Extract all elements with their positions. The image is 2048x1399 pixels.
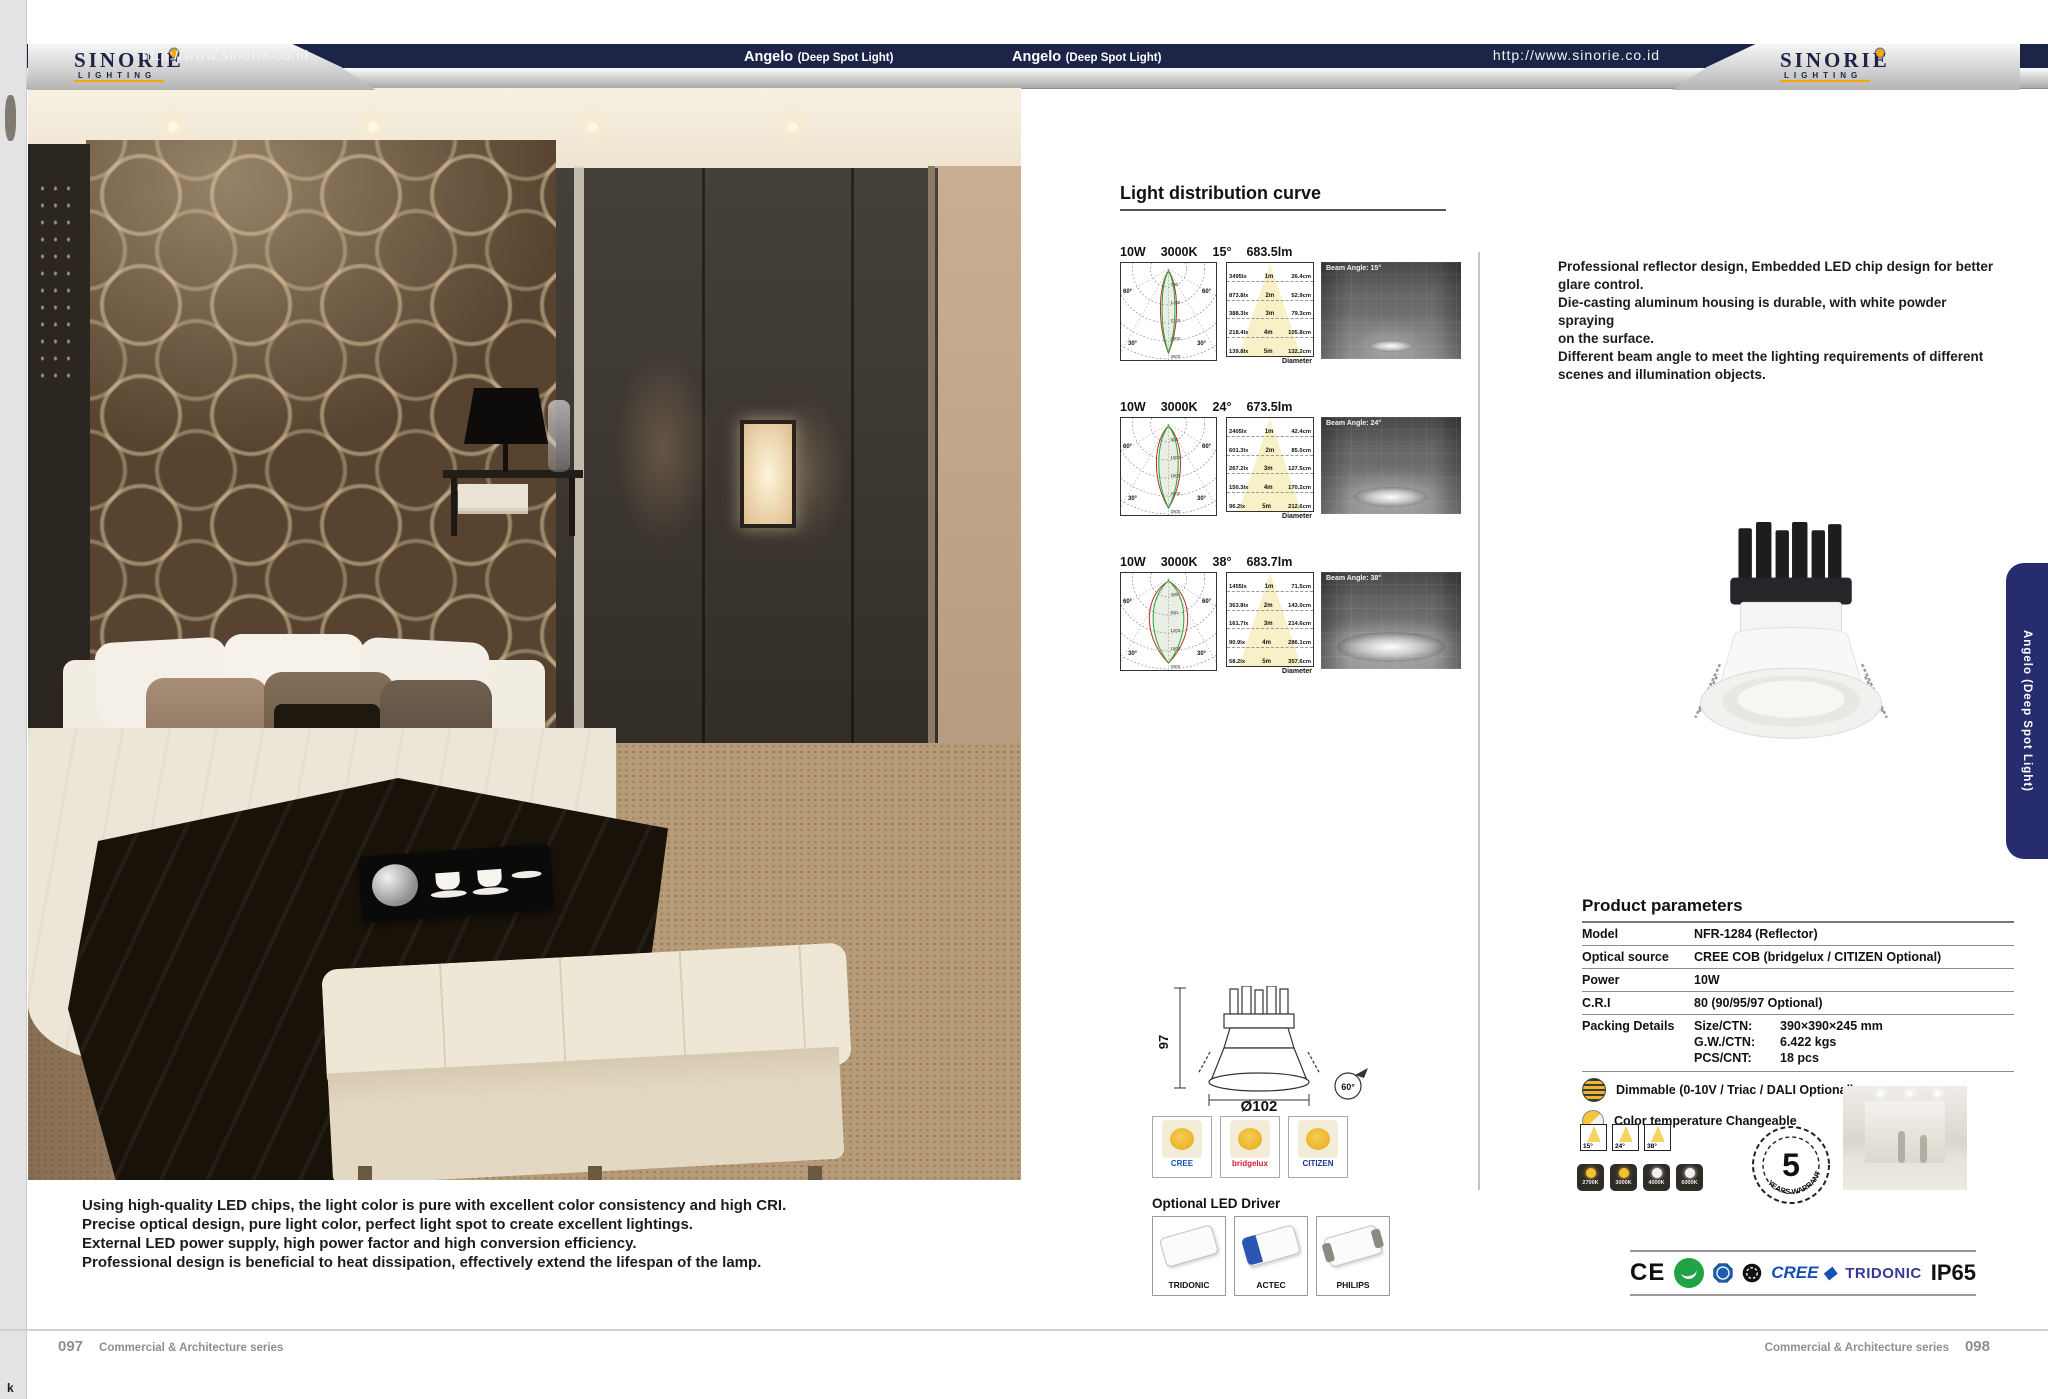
brand-tagline: LIGHTING: [1780, 71, 1870, 82]
cone-table-row: 267.2lx3m127.5cm: [1227, 456, 1313, 475]
driver-brand: TRIDONIC: [1153, 1280, 1225, 1290]
warranty-stamp: 5 YEARS WARRANTY: [1750, 1124, 1832, 1206]
mannequin-figure: [1898, 1131, 1905, 1163]
svg-text:30°: 30°: [1197, 651, 1207, 657]
cree-logo: CREE ◆: [1771, 1263, 1836, 1283]
chip-brand: CREE: [1153, 1159, 1211, 1168]
render-spotlight: [1878, 1091, 1883, 1096]
chip-brand: CITIZEN: [1289, 1159, 1347, 1168]
cone-table-row: 90.9lx4m286.1cm: [1227, 629, 1313, 648]
brand-name: SINORIE: [1780, 48, 1890, 72]
driver-option: ACTEC: [1234, 1216, 1308, 1296]
beam-cone-icon: [1619, 1126, 1633, 1142]
beam-room-photo: Beam Angle: 38°: [1321, 572, 1461, 669]
spec-cct: 3000K: [1161, 245, 1198, 259]
driver-image: [1159, 1224, 1219, 1268]
lit-wall-niche: [740, 420, 796, 528]
svg-text:60°: 60°: [1123, 444, 1133, 450]
ip-rating: IP65: [1931, 1260, 1976, 1286]
ceiling-spotlight: [788, 122, 798, 132]
parameter-row: C.R.I 80 (90/95/97 Optional): [1582, 992, 2014, 1015]
cone-table-row: 58.2lx5m357.6cm: [1227, 648, 1313, 666]
distribution-spec: 10W3000K38°683.7lm: [1120, 555, 1456, 569]
catalog-spread: SINORIE LIGHTING SINORIE LIGHTING http:/…: [0, 0, 2048, 1399]
distribution-spec: 10W3000K24°673.5lm: [1120, 400, 1456, 414]
dimension-drawing: 97 Ø102 60°: [1150, 986, 1440, 1112]
wall-frame: [574, 166, 584, 732]
glass-lamp: [548, 400, 570, 472]
saucer: [472, 886, 508, 895]
driver-image: [1323, 1224, 1383, 1268]
svg-text:2500: 2500: [1171, 509, 1181, 514]
column-divider: [1478, 252, 1480, 1190]
spec-angle: 38°: [1213, 555, 1232, 569]
side-tab-label: Angelo (Deep Spot Light): [2021, 630, 2033, 792]
render-spotlight: [1907, 1091, 1912, 1096]
svg-text:2000: 2000: [1171, 664, 1181, 669]
saucer: [431, 889, 467, 898]
beam-cone-icon: [1587, 1126, 1601, 1142]
tuv-cert-icon: [1713, 1258, 1733, 1288]
light-spot: [1368, 340, 1414, 352]
papers-stack: [458, 484, 528, 508]
cone-table-row: 96.2lx5m212.6cm: [1227, 493, 1313, 511]
cone-diagram: 1455lx1m71.5cm363.8lx2m143.0cm161.7lx3m2…: [1226, 572, 1312, 671]
footer-right: Commercial & Architecture series 098: [1560, 1338, 1990, 1355]
tilt-icon: 60°: [1335, 1068, 1368, 1099]
svg-text:60°: 60°: [1202, 289, 1212, 295]
dimmable-icon: [1582, 1078, 1606, 1102]
website-url-left: http://www.sinorie.co.id: [142, 47, 309, 63]
application-render-photo: [1843, 1086, 1967, 1190]
ce-mark: CE: [1630, 1259, 1665, 1287]
cob-chip-image: [1298, 1120, 1338, 1158]
svg-text:60°: 60°: [1202, 444, 1212, 450]
cct-option: 6000K: [1676, 1164, 1703, 1191]
brand-logo: SINORIE LIGHTING: [1780, 48, 2010, 82]
beam-angle-options: 15° 24° 38°: [1580, 1124, 1671, 1151]
parameter-row: Power 10W: [1582, 969, 2014, 992]
diameter-dimension: Ø102: [1241, 1098, 1278, 1112]
driver-options: TRIDONIC ACTEC PHILIPS: [1152, 1216, 1390, 1296]
parameter-row-packing: Packing Details Size/CTN: 390×390×245 mm…: [1582, 1015, 2014, 1072]
beam-angle-caption: Beam Angle: 24°: [1326, 420, 1381, 427]
tea-cup: [477, 869, 502, 888]
svg-text:60°: 60°: [1341, 1082, 1355, 1092]
website-url-right: http://www.sinorie.co.id: [1260, 47, 1660, 63]
footer-left: 097 Commercial & Architecture series: [58, 1338, 283, 1355]
bedroom-photo: [28, 88, 1021, 1180]
product-intro: Professional reflector design, Embedded …: [1558, 258, 1998, 384]
bulb-icon: [1685, 1168, 1695, 1178]
warranty-number: 5: [1782, 1147, 1800, 1183]
height-dimension: 97: [1156, 1035, 1171, 1049]
certifications-row: CE CREE ◆ TRIDONIC IP65: [1630, 1250, 1976, 1296]
table-lamp-stem: [503, 444, 508, 472]
tea-cup: [435, 872, 460, 891]
cone-diagram: 3495lx1m26.4cm873.8lx2m52.9cm388.3lx3m79…: [1226, 262, 1312, 361]
cone-table-row: 363.8lx2m143.0cm: [1227, 592, 1313, 611]
cone-table-row: 150.3lx4m170.2cm: [1227, 474, 1313, 493]
cone-table-row: 161.7lx3m214.6cm: [1227, 611, 1313, 630]
packing-line: Size/CTN: 390×390×245 mm: [1694, 1019, 2014, 1033]
bulb-icon: [1619, 1168, 1629, 1178]
ceiling-spotlight: [168, 122, 178, 132]
parameters-title: Product parameters: [1582, 896, 2014, 923]
series-label: Commercial & Architecture series: [1765, 1342, 1949, 1354]
spec-flux: 683.7lm: [1246, 555, 1292, 569]
spec-flux: 673.5lm: [1246, 400, 1292, 414]
beam-angle-option: 24°: [1612, 1124, 1639, 1151]
ceiling-spotlight: [588, 122, 598, 132]
driver-image: [1241, 1224, 1301, 1268]
footer-rule: [0, 1329, 2048, 1331]
spec-angle: 15°: [1213, 245, 1232, 259]
driver-brand: ACTEC: [1235, 1280, 1307, 1290]
driver-section-title: Optional LED Driver: [1152, 1196, 1280, 1211]
cct-option: 4000K: [1643, 1164, 1670, 1191]
tan-wall: [933, 166, 1021, 756]
table-lamp: [464, 388, 548, 444]
cob-chip-image: [1230, 1120, 1270, 1158]
intro-line: on the surface.: [1558, 330, 1998, 348]
cone-table-row: 2405lx1m42.4cm: [1227, 418, 1313, 437]
intro-line: Die-casting aluminum housing is durable,…: [1558, 294, 1998, 330]
diameter-label: Diameter: [1282, 668, 1312, 675]
svg-text:60°: 60°: [1123, 289, 1133, 295]
bulb-icon: [1652, 1168, 1662, 1178]
corner-mark: k: [7, 1381, 14, 1395]
page-number: 097: [58, 1338, 83, 1355]
spec-power: 10W: [1120, 555, 1146, 569]
beam-room-photo: Beam Angle: 24°: [1321, 417, 1461, 514]
polar-curve-chart: 700140021002800350060°60°30°30°: [1120, 262, 1217, 361]
parameter-row: Model NFR-1284 (Reflector): [1582, 923, 2014, 946]
silver-kettle: [371, 863, 420, 908]
beam-angle-caption: Beam Angle: 38°: [1326, 575, 1381, 582]
product-title-right: Angelo (Deep Spot Light): [1012, 48, 1161, 66]
spec-angle: 24°: [1213, 400, 1232, 414]
cone-table-row: 3495lx1m26.4cm: [1227, 263, 1313, 282]
downlight-product-photo: [1672, 520, 1910, 762]
cone-table-row: 1455lx1m71.5cm: [1227, 573, 1313, 592]
light-spot: [1337, 632, 1445, 662]
cct-option: 3000K: [1610, 1164, 1637, 1191]
polar-curve-chart: 500100015002000250060°60°30°30°: [1120, 417, 1217, 516]
svg-text:30°: 30°: [1197, 341, 1207, 347]
intro-line: scenes and illumination objects.: [1558, 366, 1998, 384]
page-number: 098: [1965, 1338, 1990, 1355]
emblem-cert-icon: [1742, 1258, 1762, 1288]
chip-brand: bridgelux: [1221, 1159, 1279, 1168]
cone-table-row: 873.8lx2m52.9cm: [1227, 282, 1313, 301]
wall-frame: [928, 166, 935, 754]
svg-text:60°: 60°: [1202, 599, 1212, 605]
svg-text:30°: 30°: [1128, 651, 1138, 657]
diameter-label: Diameter: [1282, 513, 1312, 520]
distribution-row: 10W3000K15°683.5lm700140021002800350060°…: [1120, 245, 1456, 361]
beam-angle-option: 15°: [1580, 1124, 1607, 1151]
chip-option: bridgelux: [1220, 1116, 1280, 1178]
polar-curve-chart: 40080012001600200060°60°30°30°: [1120, 572, 1217, 671]
spec-power: 10W: [1120, 400, 1146, 414]
chip-option: CITIZEN: [1288, 1116, 1348, 1178]
cob-chip-image: [1162, 1120, 1202, 1158]
description-line: Using high-quality LED chips, the light …: [82, 1196, 1002, 1215]
intro-line: Different beam angle to meet the lightin…: [1558, 348, 1998, 366]
driver-option: TRIDONIC: [1152, 1216, 1226, 1296]
cone-table-row: 388.3lx3m79.3cm: [1227, 301, 1313, 320]
adjacent-page-artifact: [5, 95, 16, 141]
driver-option: PHILIPS: [1316, 1216, 1390, 1296]
mannequin-figure: [1920, 1135, 1927, 1163]
series-side-tab: Angelo (Deep Spot Light): [2006, 563, 2048, 859]
spec-cct: 3000K: [1161, 555, 1198, 569]
led-chip-options: CREE bridgelux CITIZEN: [1152, 1116, 1348, 1178]
light-distribution-title: Light distribution curve: [1120, 183, 1321, 204]
svg-text:60°: 60°: [1123, 599, 1133, 605]
page-edge-strip: k: [0, 0, 27, 1399]
cone-table-row: 139.8lx5m132.2cm: [1227, 338, 1313, 356]
intro-line: glare control.: [1558, 276, 1998, 294]
description-line: Professional design is beneficial to hea…: [82, 1253, 1002, 1272]
parameter-row: Optical source CREE COB (bridgelux / CIT…: [1582, 946, 2014, 969]
saucer: [511, 870, 541, 879]
rohs-cert-icon: [1674, 1258, 1704, 1288]
svg-text:30°: 30°: [1128, 496, 1138, 502]
tridonic-logo: TRIDONIC: [1845, 1265, 1922, 1282]
distribution-row: 10W3000K24°673.5lm500100015002000250060°…: [1120, 400, 1456, 516]
render-spotlight: [1935, 1091, 1940, 1096]
brand-tagline: LIGHTING: [74, 71, 164, 82]
packing-line: G.W./CTN: 6.422 kgs: [1694, 1035, 2014, 1049]
beam-angle-caption: Beam Angle: 15°: [1326, 265, 1381, 272]
svg-text:30°: 30°: [1128, 341, 1138, 347]
bench-leg: [808, 1166, 822, 1180]
series-label: Commercial & Architecture series: [99, 1342, 283, 1354]
breakfast-tray: [358, 843, 554, 922]
description-line: Precise optical design, pure light color…: [82, 1215, 1002, 1234]
svg-text:3500: 3500: [1171, 354, 1181, 359]
cone-table-row: 601.3lx2m85.0cm: [1227, 437, 1313, 456]
beam-room-photo: Beam Angle: 15°: [1321, 262, 1461, 359]
light-spot: [1354, 487, 1428, 507]
driver-brand: PHILIPS: [1317, 1280, 1389, 1290]
distribution-row: 10W3000K38°683.7lm40080012001600200060°6…: [1120, 555, 1456, 671]
description-line: External LED power supply, high power fa…: [82, 1234, 1002, 1253]
brand-orbit-icon: [1876, 49, 1884, 57]
cone-diagram: 2405lx1m42.4cm601.3lx2m85.0cm267.2lx3m12…: [1226, 417, 1312, 516]
product-description: Using high-quality LED chips, the light …: [82, 1196, 1002, 1272]
distribution-spec: 10W3000K15°683.5lm: [1120, 245, 1456, 259]
intro-line: Professional reflector design, Embedded …: [1558, 258, 1998, 276]
color-temperature-options: 2700K 3000K 4000K 6000K: [1577, 1164, 1703, 1191]
beam-cone-icon: [1651, 1126, 1665, 1142]
beam-angle-option: 38°: [1644, 1124, 1671, 1151]
chip-option: CREE: [1152, 1116, 1212, 1178]
spec-flux: 683.5lm: [1246, 245, 1292, 259]
spec-power: 10W: [1120, 245, 1146, 259]
bulb-icon: [1586, 1168, 1596, 1178]
bench-leg: [358, 1166, 372, 1180]
cone-table-row: 218.4lx4m105.8cm: [1227, 319, 1313, 338]
ceiling-spotlight: [368, 122, 378, 132]
diameter-label: Diameter: [1282, 358, 1312, 365]
spec-cct: 3000K: [1161, 400, 1198, 414]
cct-option: 2700K: [1577, 1164, 1604, 1191]
svg-text:30°: 30°: [1197, 496, 1207, 502]
bench-leg: [588, 1166, 602, 1180]
product-title-left: Angelo (Deep Spot Light): [744, 48, 893, 66]
packing-line: PCS/CNT: 18 pcs: [1694, 1051, 2014, 1065]
light-distribution-rule: [1120, 209, 1446, 211]
